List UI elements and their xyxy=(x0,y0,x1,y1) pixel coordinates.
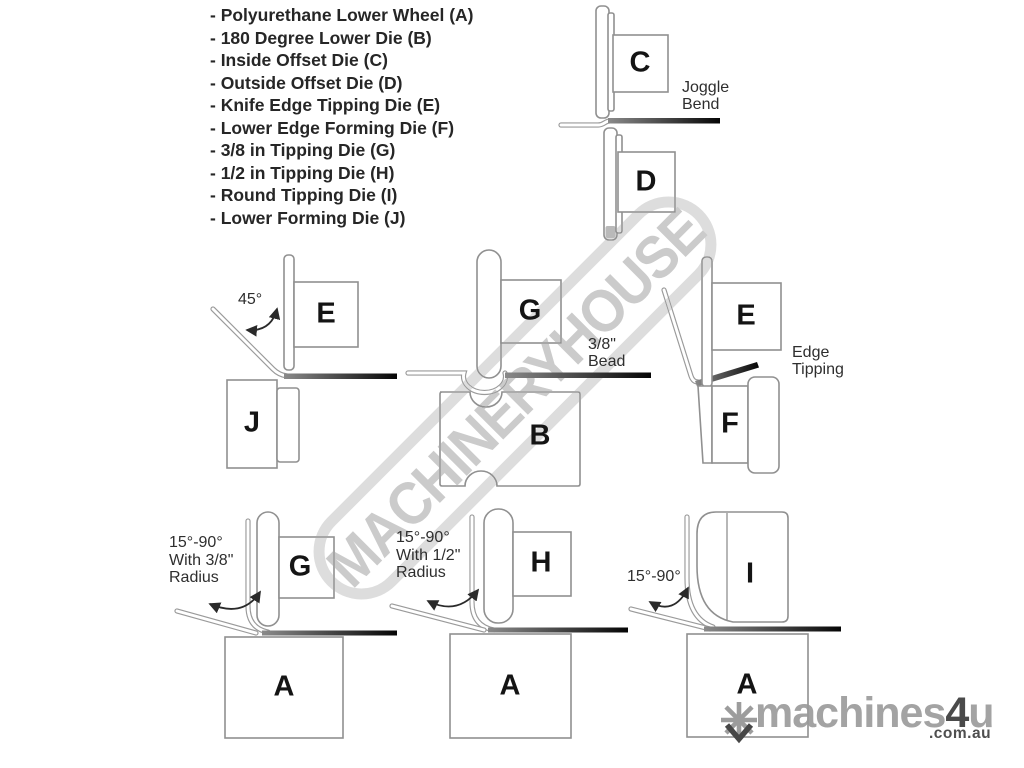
sheet-12-dark xyxy=(488,628,628,633)
die-c-wheel xyxy=(596,6,609,118)
angle-45-label: 45° xyxy=(238,291,262,308)
die-d-wheel xyxy=(604,128,617,240)
sheet-38-diag-inner xyxy=(177,611,256,633)
die-letter-a-1: A xyxy=(274,671,295,704)
bead-label: 3/8" Bead xyxy=(588,336,625,370)
die-letter-e-tip: E xyxy=(736,300,755,333)
sheet-round-dark xyxy=(704,627,841,632)
logo-brand: machines xyxy=(755,689,945,737)
die-letter-i: I xyxy=(746,558,754,591)
sheet-38-dark xyxy=(262,631,397,636)
die-letter-j: J xyxy=(244,407,260,440)
parts-list-item: - Lower Forming Die (J) xyxy=(210,207,474,230)
die-letter-d: D xyxy=(636,166,657,199)
die-f-wedge xyxy=(698,386,712,463)
die-letter-e-knife: E xyxy=(316,298,335,331)
die-letter-a-2: A xyxy=(500,670,521,703)
parts-list: - Polyurethane Lower Wheel (A) - 180 Deg… xyxy=(210,4,474,229)
parts-list-item: - 1/2 in Tipping Die (H) xyxy=(210,162,474,185)
parts-list-item: - Inside Offset Die (C) xyxy=(210,49,474,72)
die-j-step xyxy=(277,388,299,462)
tipping-38-arrow xyxy=(210,592,260,609)
die-e-knife-wheel xyxy=(284,255,294,370)
diagram-sheet: MACHINERYHOUSE - Polyurethane Lower Whee… xyxy=(0,0,1024,768)
die-i-body xyxy=(697,512,788,622)
die-f-roller xyxy=(748,377,779,473)
sheet-45-dark xyxy=(284,374,397,380)
die-letter-f: F xyxy=(721,408,739,441)
die-letter-h: H xyxy=(531,547,552,580)
tipping-38-label: 15°-90° With 3/8" Radius xyxy=(169,534,233,587)
joggle-bend-label: Joggle Bend xyxy=(682,79,729,113)
die-g-38-wheel xyxy=(257,512,279,626)
parts-list-item: - Knife Edge Tipping Die (E) xyxy=(210,94,474,117)
parts-list-item: - 180 Degree Lower Die (B) xyxy=(210,27,474,50)
angle-45-arrow xyxy=(247,309,277,330)
die-letter-b: B xyxy=(530,420,551,453)
tipping-round-arrow xyxy=(650,588,688,607)
die-letter-c: C xyxy=(630,47,651,80)
parts-list-item: - Lower Edge Forming Die (F) xyxy=(210,117,474,140)
edge-tipping-label: Edge Tipping xyxy=(792,344,844,378)
die-h-wheel xyxy=(484,509,513,623)
diagram-knife-edge-45 xyxy=(213,255,397,468)
sheet-joggle-dark xyxy=(608,118,720,124)
die-letter-g-38: G xyxy=(289,551,312,584)
parts-list-item: - Round Tipping Die (I) xyxy=(210,184,474,207)
parts-list-item: - Polyurethane Lower Wheel (A) xyxy=(210,4,474,27)
parts-list-item: - Outside Offset Die (D) xyxy=(210,72,474,95)
tipping-12-label: 15°-90° With 1/2" Radius xyxy=(396,529,460,582)
parts-list-item: - 3/8 in Tipping Die (G) xyxy=(210,139,474,162)
die-letter-g-bead: G xyxy=(519,295,542,328)
logo-domain: .com.au xyxy=(929,725,991,743)
tipping-round-label: 15°-90° xyxy=(627,568,681,585)
